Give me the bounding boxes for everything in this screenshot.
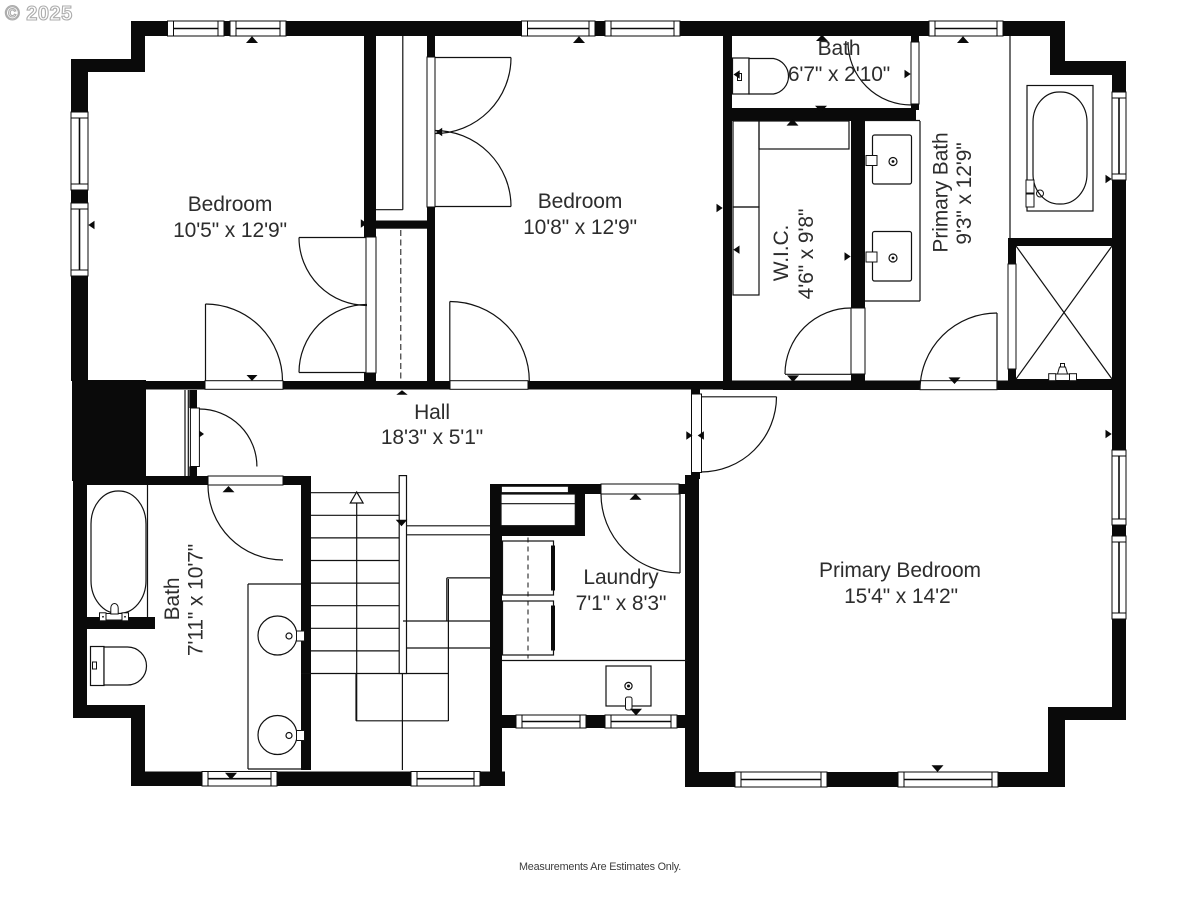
svg-text:7'11" x 10'7": 7'11" x 10'7" [185, 544, 208, 656]
svg-text:10'5" x 12'9": 10'5" x 12'9" [173, 219, 287, 242]
svg-text:15'4" x 14'2": 15'4" x 14'2" [844, 585, 958, 608]
svg-text:Primary Bath: Primary Bath [930, 132, 953, 252]
svg-text:7'1" x 8'3": 7'1" x 8'3" [576, 592, 667, 615]
svg-text:18'3" x 5'1": 18'3" x 5'1" [381, 426, 483, 449]
svg-text:4'6" x 9'8": 4'6" x 9'8" [795, 209, 818, 300]
svg-text:W.I.C.: W.I.C. [770, 225, 793, 282]
svg-text:9'3" x 12'9": 9'3" x 12'9" [953, 142, 976, 244]
svg-text:Bath: Bath [161, 578, 184, 621]
svg-text:Primary Bedroom: Primary Bedroom [819, 559, 981, 582]
svg-text:Hall: Hall [414, 401, 450, 424]
svg-text:Laundry: Laundry [583, 566, 659, 589]
svg-text:Bedroom: Bedroom [538, 190, 623, 213]
svg-text:Bath: Bath [818, 37, 861, 60]
svg-text:10'8" x 12'9": 10'8" x 12'9" [523, 216, 637, 239]
svg-text:Bedroom: Bedroom [188, 193, 273, 216]
svg-text:6'7" x 2'10": 6'7" x 2'10" [788, 63, 890, 86]
